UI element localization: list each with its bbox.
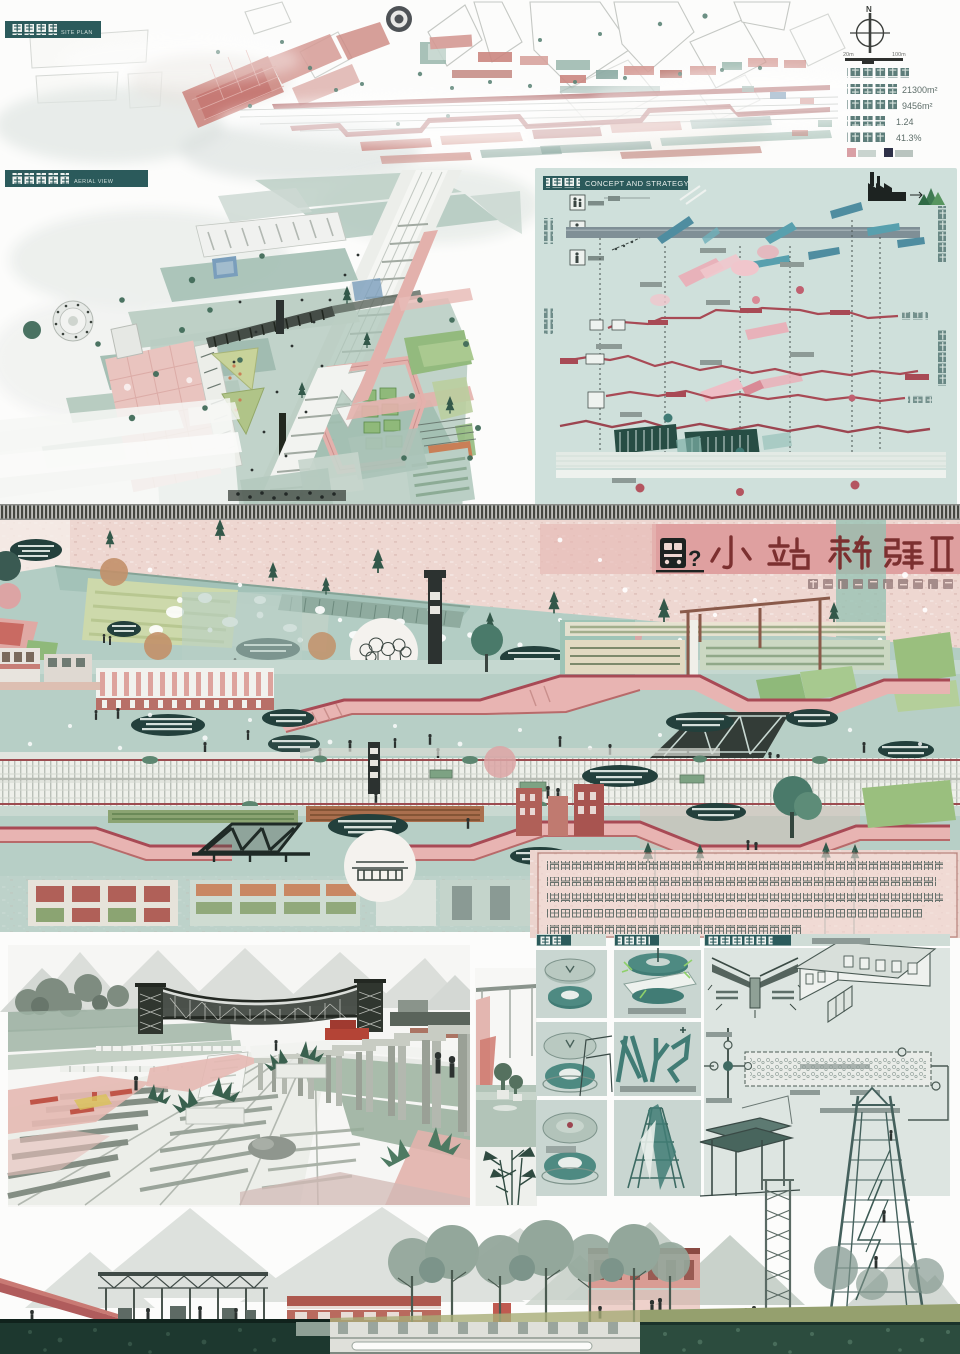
svg-text:100m: 100m <box>892 52 906 58</box>
svg-text:?: ? <box>688 546 701 571</box>
svg-text:CONCEPT AND STRATEGY: CONCEPT AND STRATEGY <box>585 179 689 188</box>
svg-text:21300m²: 21300m² <box>902 85 938 95</box>
svg-text:9456m²: 9456m² <box>902 101 933 111</box>
svg-text:20m: 20m <box>843 52 854 58</box>
svg-text:1.24: 1.24 <box>896 117 914 127</box>
svg-text:41.3%: 41.3% <box>896 133 922 143</box>
svg-text:SITE PLAN: SITE PLAN <box>61 30 93 36</box>
svg-text:N: N <box>866 5 872 14</box>
svg-text:AERIAL VIEW: AERIAL VIEW <box>74 179 114 185</box>
